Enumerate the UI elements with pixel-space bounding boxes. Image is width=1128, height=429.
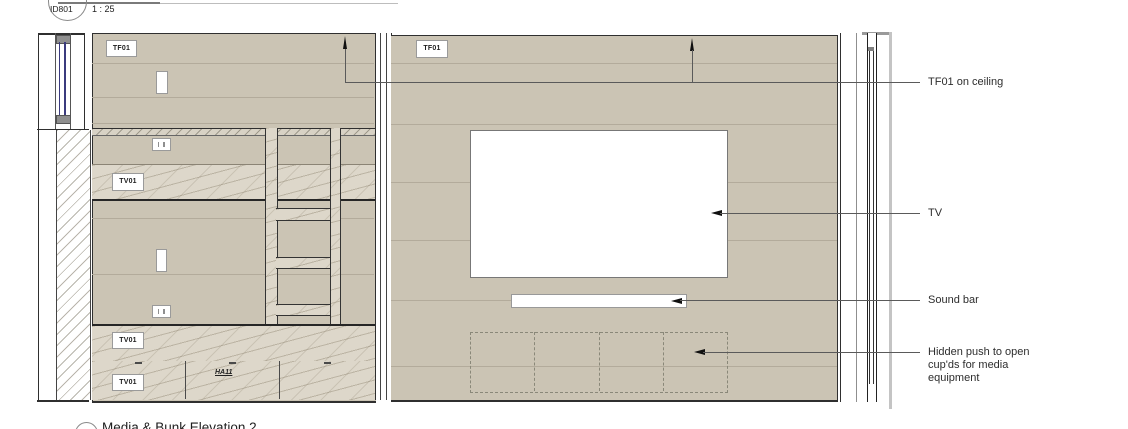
reference-id: ID801 — [50, 4, 73, 14]
left-bottom-line — [37, 400, 89, 402]
panel-divider — [375, 33, 393, 400]
tv-leader — [720, 213, 920, 214]
reference-scale: 1 : 25 — [92, 4, 115, 14]
window-glazing — [59, 42, 61, 115]
ha11-tag: HA11 — [215, 369, 232, 376]
annotation-cupboards: Hidden push to open cup'ds for media equ… — [928, 346, 1068, 386]
ceiling-arrowhead-left — [343, 36, 347, 49]
ceiling-leader-vertical-left — [345, 49, 346, 82]
tv01-tag-drawer: TV01 — [112, 374, 144, 392]
right-section-line-gray — [856, 33, 857, 402]
ladder-rung — [276, 304, 330, 316]
plank-line — [391, 124, 837, 125]
light-switch-upper — [156, 71, 168, 95]
annotation-soundbar: Sound bar — [928, 294, 979, 307]
window-cap-bottom — [56, 115, 71, 124]
annotation-cupboards-line3: equipment — [928, 372, 1068, 385]
right-section-line — [840, 33, 841, 402]
annotation-cupboards-line1: Hidden push to open — [928, 346, 1068, 359]
drawer-handle — [324, 362, 331, 365]
reference-rule-light — [160, 3, 398, 4]
right-strip-inner — [869, 51, 874, 384]
annotation-cupboards-line2: cup'ds for media — [928, 359, 1068, 372]
tf01-tag-left: TF01 — [106, 40, 137, 57]
plank-line — [92, 63, 374, 64]
plank-line — [92, 123, 374, 124]
title-bubble: 2 — [75, 422, 98, 429]
ladder-rung — [276, 208, 330, 221]
divider-inner-line — [386, 33, 387, 400]
sound-bar — [511, 294, 687, 308]
ceiling-leader — [345, 82, 920, 83]
plank-line — [391, 63, 837, 64]
plank-line — [92, 97, 374, 98]
window-glazing-2 — [64, 42, 66, 115]
tv-screen — [470, 130, 728, 278]
drawer-handle — [229, 362, 236, 365]
tf01-tag-right: TF01 — [416, 40, 448, 58]
light-switch-lower — [156, 249, 168, 273]
drawer-handle — [135, 362, 142, 365]
annotation-ceiling: TF01 on ceiling — [928, 76, 1003, 89]
cupboard-leader — [703, 352, 920, 353]
window-jamb-inner — [84, 33, 85, 129]
drawer-divider — [185, 361, 186, 399]
wall-section-hatch — [56, 130, 91, 400]
cupboard-divider — [663, 332, 664, 391]
drawer-divider — [279, 361, 280, 399]
cupboard-divider — [534, 332, 535, 391]
window-jamb-outer — [38, 33, 39, 400]
soundbar-leader — [680, 300, 920, 301]
elevation-drawing: ID801 1 : 25 TF01 TV01 TV01 TV01 HA11 — [0, 0, 1128, 429]
cupboard-divider — [599, 332, 600, 391]
annotation-tv: TV — [928, 207, 942, 220]
tv01-tag-base: TV01 — [112, 332, 144, 350]
drawing-title: Media & Bunk Elevation 2 — [102, 420, 257, 429]
power-outlet-lower — [152, 305, 171, 318]
tv01-tag-rail: TV01 — [112, 173, 144, 191]
divider-inner-line — [380, 33, 381, 400]
power-outlet-upper — [152, 138, 171, 151]
ladder-rung — [276, 257, 330, 270]
ceiling-leader-vertical-right — [692, 50, 693, 82]
